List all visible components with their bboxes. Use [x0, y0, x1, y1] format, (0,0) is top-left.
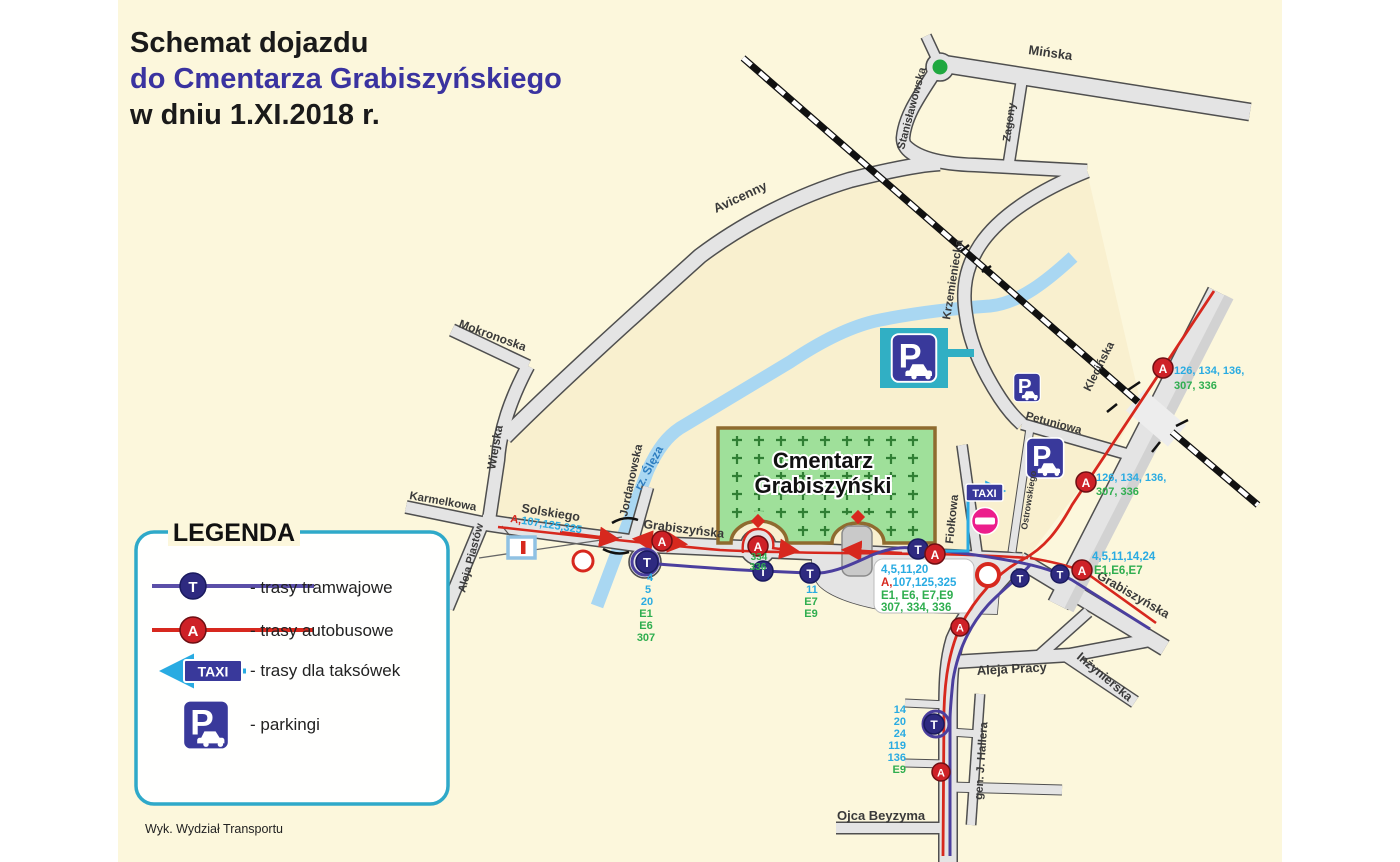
- svg-text:A: A: [956, 623, 964, 635]
- west-loop-route: 4: [647, 572, 654, 584]
- legend-taxi-label: - trasy dla taksówek: [250, 661, 401, 680]
- roundabout-green-icon: [933, 60, 948, 75]
- mid-stop-route: E7: [804, 596, 817, 608]
- credit-text: Wyk. Wydział Transportu: [145, 822, 283, 836]
- klecinska-upper-routes: 307, 336: [1174, 380, 1217, 392]
- bus-stop-icon: A: [932, 763, 950, 781]
- parking-icon: [183, 701, 229, 750]
- svg-text:A: A: [931, 548, 940, 562]
- svg-text:A: A: [658, 535, 667, 549]
- west-loop-route: 5: [645, 584, 651, 596]
- title-line3: w dniu 1.XI.2018 r.: [129, 99, 380, 131]
- svg-text:T: T: [914, 543, 922, 557]
- svg-text:A: A: [937, 768, 945, 780]
- tram-stop-icon: T: [180, 573, 206, 599]
- south-route: 24: [894, 728, 907, 740]
- parking-icon: [1014, 373, 1041, 401]
- klecinska-lower-routes: 307, 336: [1096, 486, 1139, 498]
- west-loop-route: 307: [637, 632, 655, 644]
- south-route: 20: [894, 716, 906, 728]
- svg-text:307, 334, 336: 307, 334, 336: [881, 602, 951, 614]
- svg-text:A: A: [188, 623, 199, 640]
- svg-text:T: T: [1057, 570, 1064, 582]
- transit-map-svg: P: [0, 0, 1400, 862]
- klecinska-upper-routes: 126, 134, 136,: [1174, 365, 1244, 377]
- tram-stop-icon: T: [1011, 569, 1029, 587]
- south-route: E9: [893, 764, 906, 776]
- legend: LEGENDA T - trasy tramwajowe A - trasy a…: [136, 518, 448, 804]
- taxi-sign: TAXI: [966, 484, 1003, 501]
- cemetery-name-line1: Cmentarz: [773, 448, 873, 473]
- south-route: 119: [888, 740, 906, 752]
- tram-stop-icon: T: [636, 551, 658, 573]
- parking-icon: [892, 334, 937, 382]
- bus-stop-icon: A: [1076, 472, 1096, 492]
- bus-stop-icon: A: [1072, 560, 1092, 580]
- svg-text:A: A: [1082, 476, 1091, 490]
- legend-tram-label: - trasy tramwajowe: [250, 578, 393, 597]
- west-loop-route: 20: [641, 596, 653, 608]
- svg-text:4,5,11,20: 4,5,11,20: [881, 564, 928, 576]
- svg-text:A,107,125,325: A,107,125,325: [881, 577, 957, 589]
- south-route: 14: [894, 704, 907, 716]
- legend-parking-label: - parkingi: [250, 715, 320, 734]
- bus-loop-circle-junction: [977, 564, 999, 586]
- svg-text:T: T: [930, 718, 938, 732]
- mid-stop-route: 11: [806, 584, 818, 596]
- legend-bus-label: - trasy autobusowe: [250, 621, 394, 640]
- junction-se-routes: 4,5,11,14,24: [1092, 551, 1156, 563]
- svg-text:T: T: [643, 555, 651, 570]
- no-entry-icon: [972, 508, 999, 535]
- svg-text:T: T: [806, 567, 814, 581]
- svg-text:A: A: [1159, 362, 1168, 376]
- svg-text:T: T: [1017, 574, 1024, 586]
- bus-stop-icon: A: [1153, 358, 1173, 378]
- page: P: [0, 0, 1400, 862]
- tram-stop-icon: T: [924, 714, 944, 734]
- title-line2: do Cmentarza Grabiszyńskiego: [130, 63, 562, 95]
- tram-stop-icon: T: [800, 563, 820, 583]
- svg-text:E1, E6, E7,E9: E1, E6, E7,E9: [881, 590, 953, 602]
- bus-loop-circle-west: [573, 551, 593, 571]
- bus-stop-icon: A: [951, 618, 969, 636]
- tram-stop-icon: T: [1051, 565, 1069, 583]
- legend-title: LEGENDA: [173, 519, 295, 547]
- west-loop-route: E6: [639, 620, 652, 632]
- taxi-sign: TAXI: [184, 660, 242, 682]
- gate-stop-route: 336: [750, 562, 767, 573]
- svg-text:T: T: [188, 579, 197, 596]
- junction-se-routes: E1,E6,E7: [1094, 565, 1143, 577]
- title-line1: Schemat dojazdu: [130, 27, 369, 59]
- bus-stop-icon: A: [180, 617, 206, 643]
- taxi-sign-text: TAXI: [972, 488, 996, 500]
- svg-text:A: A: [1078, 564, 1087, 578]
- cemetery-name-line2: Grabiszyński: [755, 473, 892, 498]
- svg-text:TAXI: TAXI: [198, 664, 229, 680]
- south-route: 136: [888, 752, 906, 764]
- west-loop-route: E1: [639, 608, 652, 620]
- bus-stop-icon: A: [925, 544, 945, 564]
- klecinska-lower-routes: 126, 134, 136,: [1096, 472, 1166, 484]
- mid-stop-route: E9: [804, 608, 817, 620]
- street-label-ojca-beyzyma: Ojca Beyzyma: [837, 808, 926, 823]
